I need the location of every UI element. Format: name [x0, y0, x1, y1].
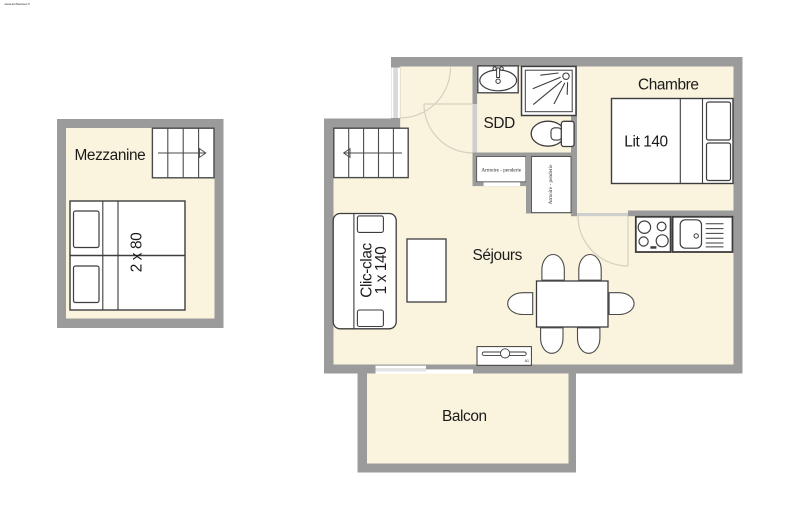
svg-text:Mezzanine: Mezzanine [75, 147, 146, 164]
svg-text:Chambre: Chambre [638, 77, 699, 94]
svg-text:1 x 140: 1 x 140 [373, 247, 390, 295]
svg-text:Lit 140: Lit 140 [624, 134, 667, 151]
svg-text:Armoire - penderie: Armoire - penderie [548, 164, 554, 204]
svg-text:Séjours: Séjours [473, 247, 523, 264]
svg-text:A1: A1 [525, 359, 529, 363]
svg-text:2 x 80: 2 x 80 [129, 233, 146, 273]
svg-text:www.architecteur.fr: www.architecteur.fr [5, 2, 30, 6]
svg-text:SDD: SDD [484, 115, 516, 132]
svg-text:Armoire - penderie: Armoire - penderie [481, 167, 521, 173]
svg-text:Balcon: Balcon [442, 408, 487, 425]
